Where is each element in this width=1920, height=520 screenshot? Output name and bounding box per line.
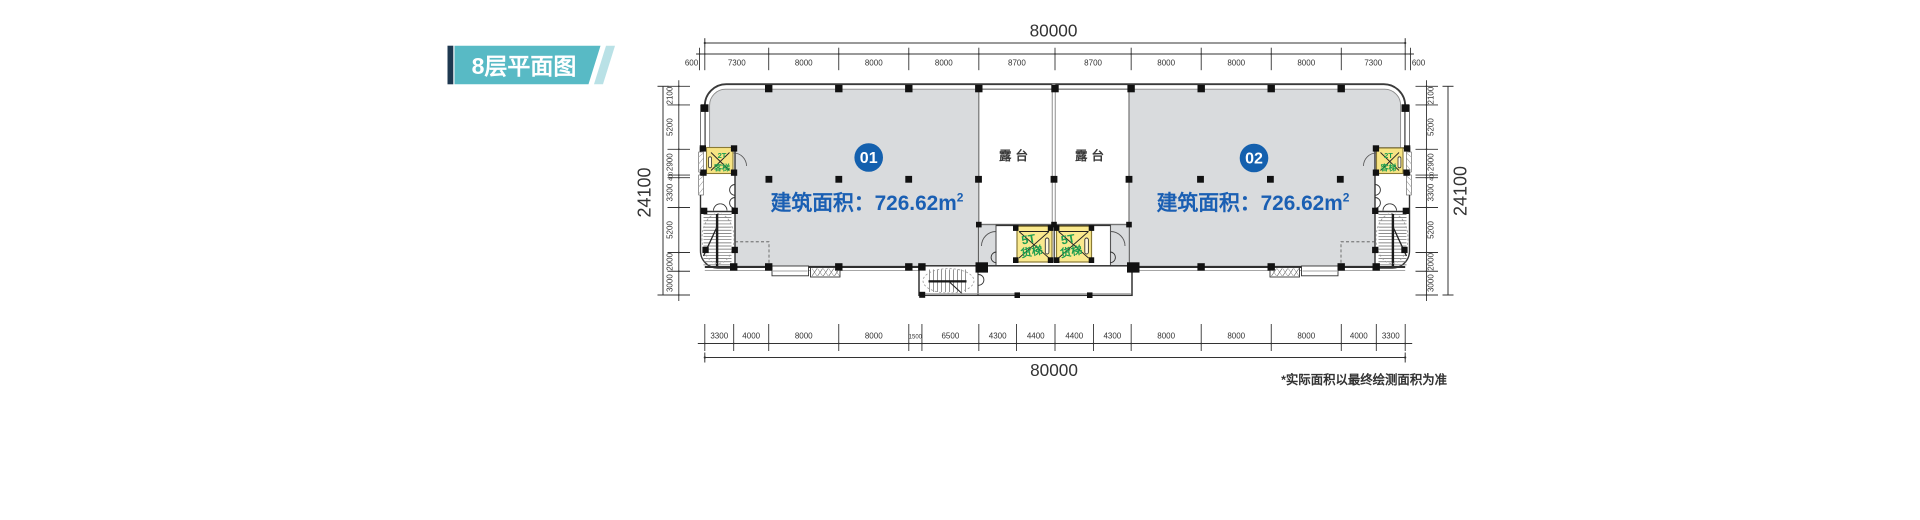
svg-text:4000: 4000 [742,332,760,341]
svg-text:建筑面积：726.62m2: 建筑面积：726.62m2 [1157,191,1350,216]
svg-text:2000: 2000 [666,252,675,270]
svg-text:8000: 8000 [1157,59,1175,68]
svg-text:客梯: 客梯 [713,163,730,173]
svg-text:8000: 8000 [935,59,953,68]
svg-text:8000: 8000 [795,59,813,68]
svg-text:4400: 4400 [1065,332,1083,341]
svg-text:4300: 4300 [989,332,1007,341]
svg-text:8000: 8000 [865,332,883,341]
svg-text:5200: 5200 [666,118,675,136]
svg-text:8700: 8700 [1084,59,1102,68]
svg-text:24100: 24100 [1451,166,1471,216]
svg-text:8000: 8000 [795,332,813,341]
svg-text:5200: 5200 [1427,118,1436,136]
svg-text:3300: 3300 [1382,332,1400,341]
svg-text:400: 400 [1430,172,1436,181]
svg-text:7300: 7300 [1364,59,1382,68]
svg-text:80000: 80000 [1030,360,1078,380]
svg-text:5200: 5200 [666,221,675,239]
svg-text:8000: 8000 [865,59,883,68]
svg-text:2T: 2T [1384,151,1393,160]
svg-text:24100: 24100 [635,167,655,217]
svg-text:8层平面图: 8层平面图 [472,53,577,79]
svg-text:3300: 3300 [1427,183,1436,201]
svg-text:3000: 3000 [666,274,675,292]
svg-text:8000: 8000 [1297,59,1315,68]
svg-text:3300: 3300 [710,332,728,341]
svg-text:400: 400 [669,172,675,181]
svg-text:建筑面积：726.62m2: 建筑面积：726.62m2 [771,191,964,216]
svg-text:2900: 2900 [1427,153,1436,171]
svg-text:6500: 6500 [941,332,959,341]
svg-text:01: 01 [860,150,878,167]
svg-text:600: 600 [685,59,699,68]
svg-text:80000: 80000 [1030,21,1078,41]
svg-text:2100: 2100 [1427,86,1436,104]
svg-text:*实际面积以最终绘测面积为准: *实际面积以最终绘测面积为准 [1281,372,1448,387]
svg-text:600: 600 [1412,59,1426,68]
svg-text:4300: 4300 [1103,332,1121,341]
svg-text:4400: 4400 [1027,332,1045,341]
svg-text:露台: 露台 [1075,148,1108,163]
svg-text:3300: 3300 [666,183,675,201]
svg-text:3000: 3000 [1427,274,1436,292]
svg-text:8000: 8000 [1227,332,1245,341]
svg-text:1500: 1500 [909,335,923,341]
svg-text:4000: 4000 [1350,332,1368,341]
svg-text:8700: 8700 [1008,59,1026,68]
svg-text:8000: 8000 [1227,59,1245,68]
svg-text:2T: 2T [718,151,727,160]
svg-text:客梯: 客梯 [1380,163,1397,173]
svg-text:2900: 2900 [666,153,675,171]
svg-text:8000: 8000 [1297,332,1315,341]
svg-text:7300: 7300 [728,59,746,68]
svg-text:2100: 2100 [666,86,675,104]
svg-text:8000: 8000 [1157,332,1175,341]
svg-text:5200: 5200 [1427,221,1436,239]
svg-text:2000: 2000 [1427,252,1436,270]
svg-text:露台: 露台 [999,148,1032,163]
svg-text:02: 02 [1245,151,1263,168]
